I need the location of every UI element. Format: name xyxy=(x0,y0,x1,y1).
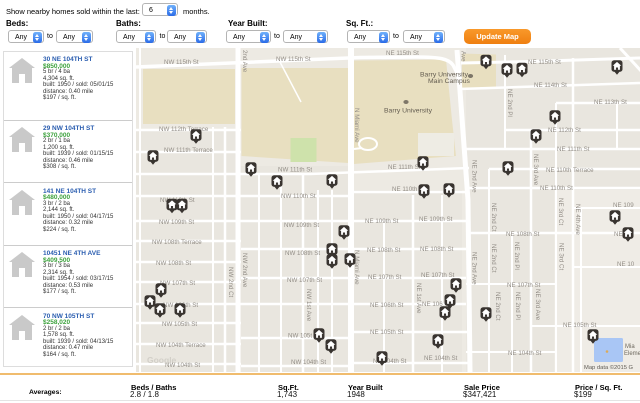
svg-text:NW 115th St: NW 115th St xyxy=(276,56,311,63)
svg-text:NE 105th St: NE 105th St xyxy=(563,322,597,329)
svg-text:NE 2nd Pl: NE 2nd Pl xyxy=(506,89,513,117)
svg-text:NW 108th St: NW 108th St xyxy=(156,260,191,267)
svg-text:NE 110th St: NE 110th St xyxy=(540,185,573,192)
svg-text:NE 115th St: NE 115th St xyxy=(528,59,561,66)
svg-text:NE 104th St: NE 104th St xyxy=(424,355,458,362)
svg-text:NE 3rd Ct: NE 3rd Ct xyxy=(558,243,565,270)
svg-text:NE 108th St: NE 108th St xyxy=(420,246,454,253)
svg-text:NE 110th: NE 110th xyxy=(392,186,418,193)
svg-text:Barry University: Barry University xyxy=(384,108,433,115)
svg-text:NW 105t: NW 105t xyxy=(288,333,312,340)
svg-text:NW 111th St: NW 111th St xyxy=(278,167,312,174)
svg-text:Ave: Ave xyxy=(460,51,467,62)
svg-text:NE 108th St: NE 108th St xyxy=(506,231,540,238)
svg-text:NW 109th St: NW 109th St xyxy=(159,219,194,226)
svg-text:NE 3rd Ct: NE 3rd Ct xyxy=(557,198,564,225)
svg-text:NE 10: NE 10 xyxy=(617,261,635,268)
svg-text:NE 112th St: NE 112th St xyxy=(548,127,581,134)
svg-text:NW 2nd Ct: NW 2nd Ct xyxy=(227,267,234,298)
svg-text:NW 109th St: NW 109th St xyxy=(284,222,319,229)
svg-text:NE 2nd Ct: NE 2nd Ct xyxy=(490,203,497,232)
svg-text:NE 109th St: NE 109th St xyxy=(365,218,399,225)
svg-text:NE 111th St: NE 111th St xyxy=(388,164,421,171)
svg-text:NE 2nd Ct: NE 2nd Ct xyxy=(490,244,497,273)
svg-text:Main Campus: Main Campus xyxy=(428,78,471,85)
svg-text:NE 2nd Ave: NE 2nd Ave xyxy=(471,160,478,193)
svg-text:NE 107th St: NE 107th St xyxy=(507,282,541,289)
svg-text:NW 105th St: NW 105th St xyxy=(162,321,197,328)
svg-text:NE 105th St: NE 105th St xyxy=(370,329,404,336)
svg-text:NE: NE xyxy=(614,231,623,238)
svg-text:NE 3rd Ave: NE 3rd Ave xyxy=(532,154,539,186)
svg-text:NW 1st Ave: NW 1st Ave xyxy=(305,289,312,322)
svg-text:NE 115th St: NE 115th St xyxy=(386,50,419,57)
svg-text:NE 111th St: NE 111th St xyxy=(557,146,590,153)
svg-text:Google: Google xyxy=(147,355,177,365)
svg-text:NE 2nd Ct: NE 2nd Ct xyxy=(494,292,501,321)
svg-text:NE 104th St: NE 104th St xyxy=(508,350,542,357)
svg-text:NW 111th Terrace: NW 111th Terrace xyxy=(164,147,213,154)
svg-text:Element: Element xyxy=(624,351,640,357)
svg-text:NW 104th Terrace: NW 104th Terrace xyxy=(156,342,206,349)
svg-text:2nd Ave: 2nd Ave xyxy=(241,50,248,73)
svg-text:NE 2nd Pl: NE 2nd Pl xyxy=(513,242,520,270)
svg-text:NE 114th St: NE 114th St xyxy=(534,82,567,89)
svg-text:NW 2nd Ave: NW 2nd Ave xyxy=(241,253,248,288)
svg-text:NW 110th St: NW 110th St xyxy=(281,193,316,200)
svg-text:NW 104th St: NW 104th St xyxy=(291,359,326,366)
svg-text:NE 109th St: NE 109th St xyxy=(419,216,453,223)
svg-text:NE 106: NE 106 xyxy=(422,301,443,308)
svg-text:NE 4th Ave: NE 4th Ave xyxy=(574,204,581,235)
svg-text:NE 108th St: NE 108th St xyxy=(367,247,401,254)
svg-text:NW 115th St: NW 115th St xyxy=(164,59,199,66)
svg-text:Mia: Mia xyxy=(625,344,635,350)
svg-text:NW 108th Terrace: NW 108th Terrace xyxy=(152,239,202,246)
svg-text:NE 107th St: NE 107th St xyxy=(368,274,402,281)
svg-text:NE 107th St: NE 107th St xyxy=(421,272,455,279)
svg-text:NW 108th St: NW 108th St xyxy=(285,250,320,257)
svg-text:NE 2nd Pl: NE 2nd Pl xyxy=(514,292,521,320)
svg-text:Map data ©2015 G: Map data ©2015 G xyxy=(584,364,634,371)
svg-text:NE 106th St: NE 106th St xyxy=(370,302,404,309)
svg-text:NE 1st Ave: NE 1st Ave xyxy=(415,283,422,314)
svg-text:NW 107th St: NW 107th St xyxy=(287,277,322,284)
svg-text:NE 109: NE 109 xyxy=(613,202,634,209)
svg-text:NE 110th Terrace: NE 110th Terrace xyxy=(546,167,594,174)
svg-text:NE 113th St: NE 113th St xyxy=(594,99,627,106)
svg-text:N Miami Ave: N Miami Ave xyxy=(353,108,360,143)
svg-text:NE 3rd Ave: NE 3rd Ave xyxy=(534,289,541,321)
svg-text:NE 2nd Ave: NE 2nd Ave xyxy=(471,252,478,285)
